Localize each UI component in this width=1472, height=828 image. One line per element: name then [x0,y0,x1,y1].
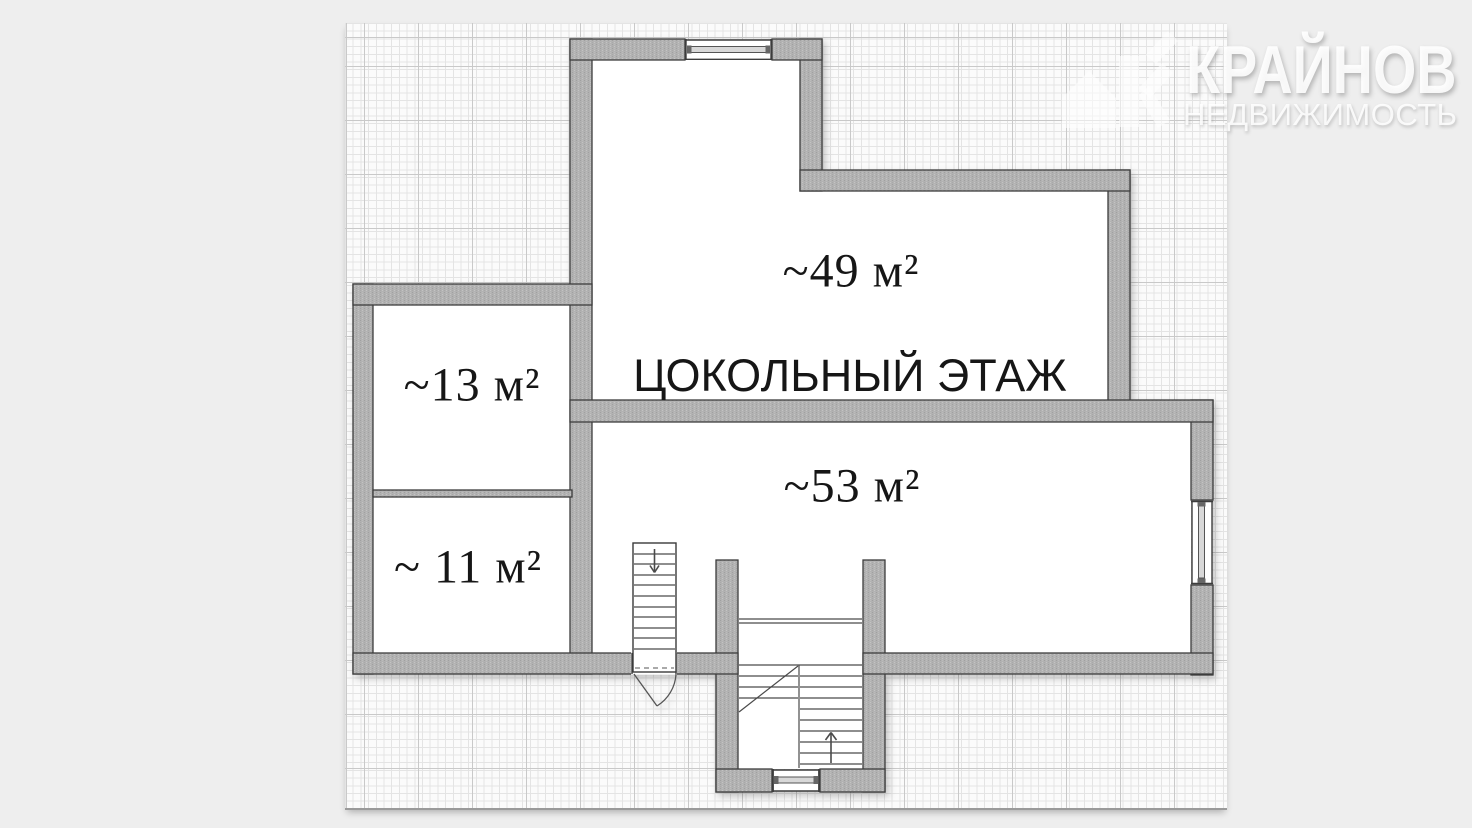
wall [820,769,885,792]
door-swing-icon [634,674,676,706]
wall [570,39,685,60]
wall-partition [373,490,572,497]
wall [570,39,592,674]
staircase-small [633,543,676,706]
wall [716,769,772,792]
window-symbol-right [1191,501,1213,584]
room-53-floor [592,422,1191,653]
room-49-floor [592,60,1108,400]
window-symbol-stairwell [773,769,820,792]
wall [863,560,885,792]
brand-name: КРАЙНОВ [1186,36,1457,104]
brand-subtitle: НЕДВИЖИМОСТЬ [1183,99,1458,130]
wall [772,39,822,60]
wall [800,39,822,191]
room-11-area-label: ~ 11 м² [394,540,542,595]
wall [800,170,1130,191]
wall [570,400,1213,422]
wall [353,653,632,674]
room-53-area-label: ~53 м² [784,459,921,514]
wall [1108,170,1130,421]
wall [353,284,373,674]
wall [353,284,592,305]
wall [863,653,1213,674]
floor-plan-page: ~49 м² ~53 м² ~13 м² ~ 11 м² ЦОКОЛЬНЫЙ Э… [0,0,1472,828]
window-symbol-top [685,39,772,60]
room-13-area-label: ~13 м² [404,358,541,413]
room-49-area-label: ~49 м² [783,244,920,299]
wall [716,560,738,792]
floor-title: ЦОКОЛЬНЫЙ ЭТАЖ [633,350,1067,402]
wall [676,653,738,674]
